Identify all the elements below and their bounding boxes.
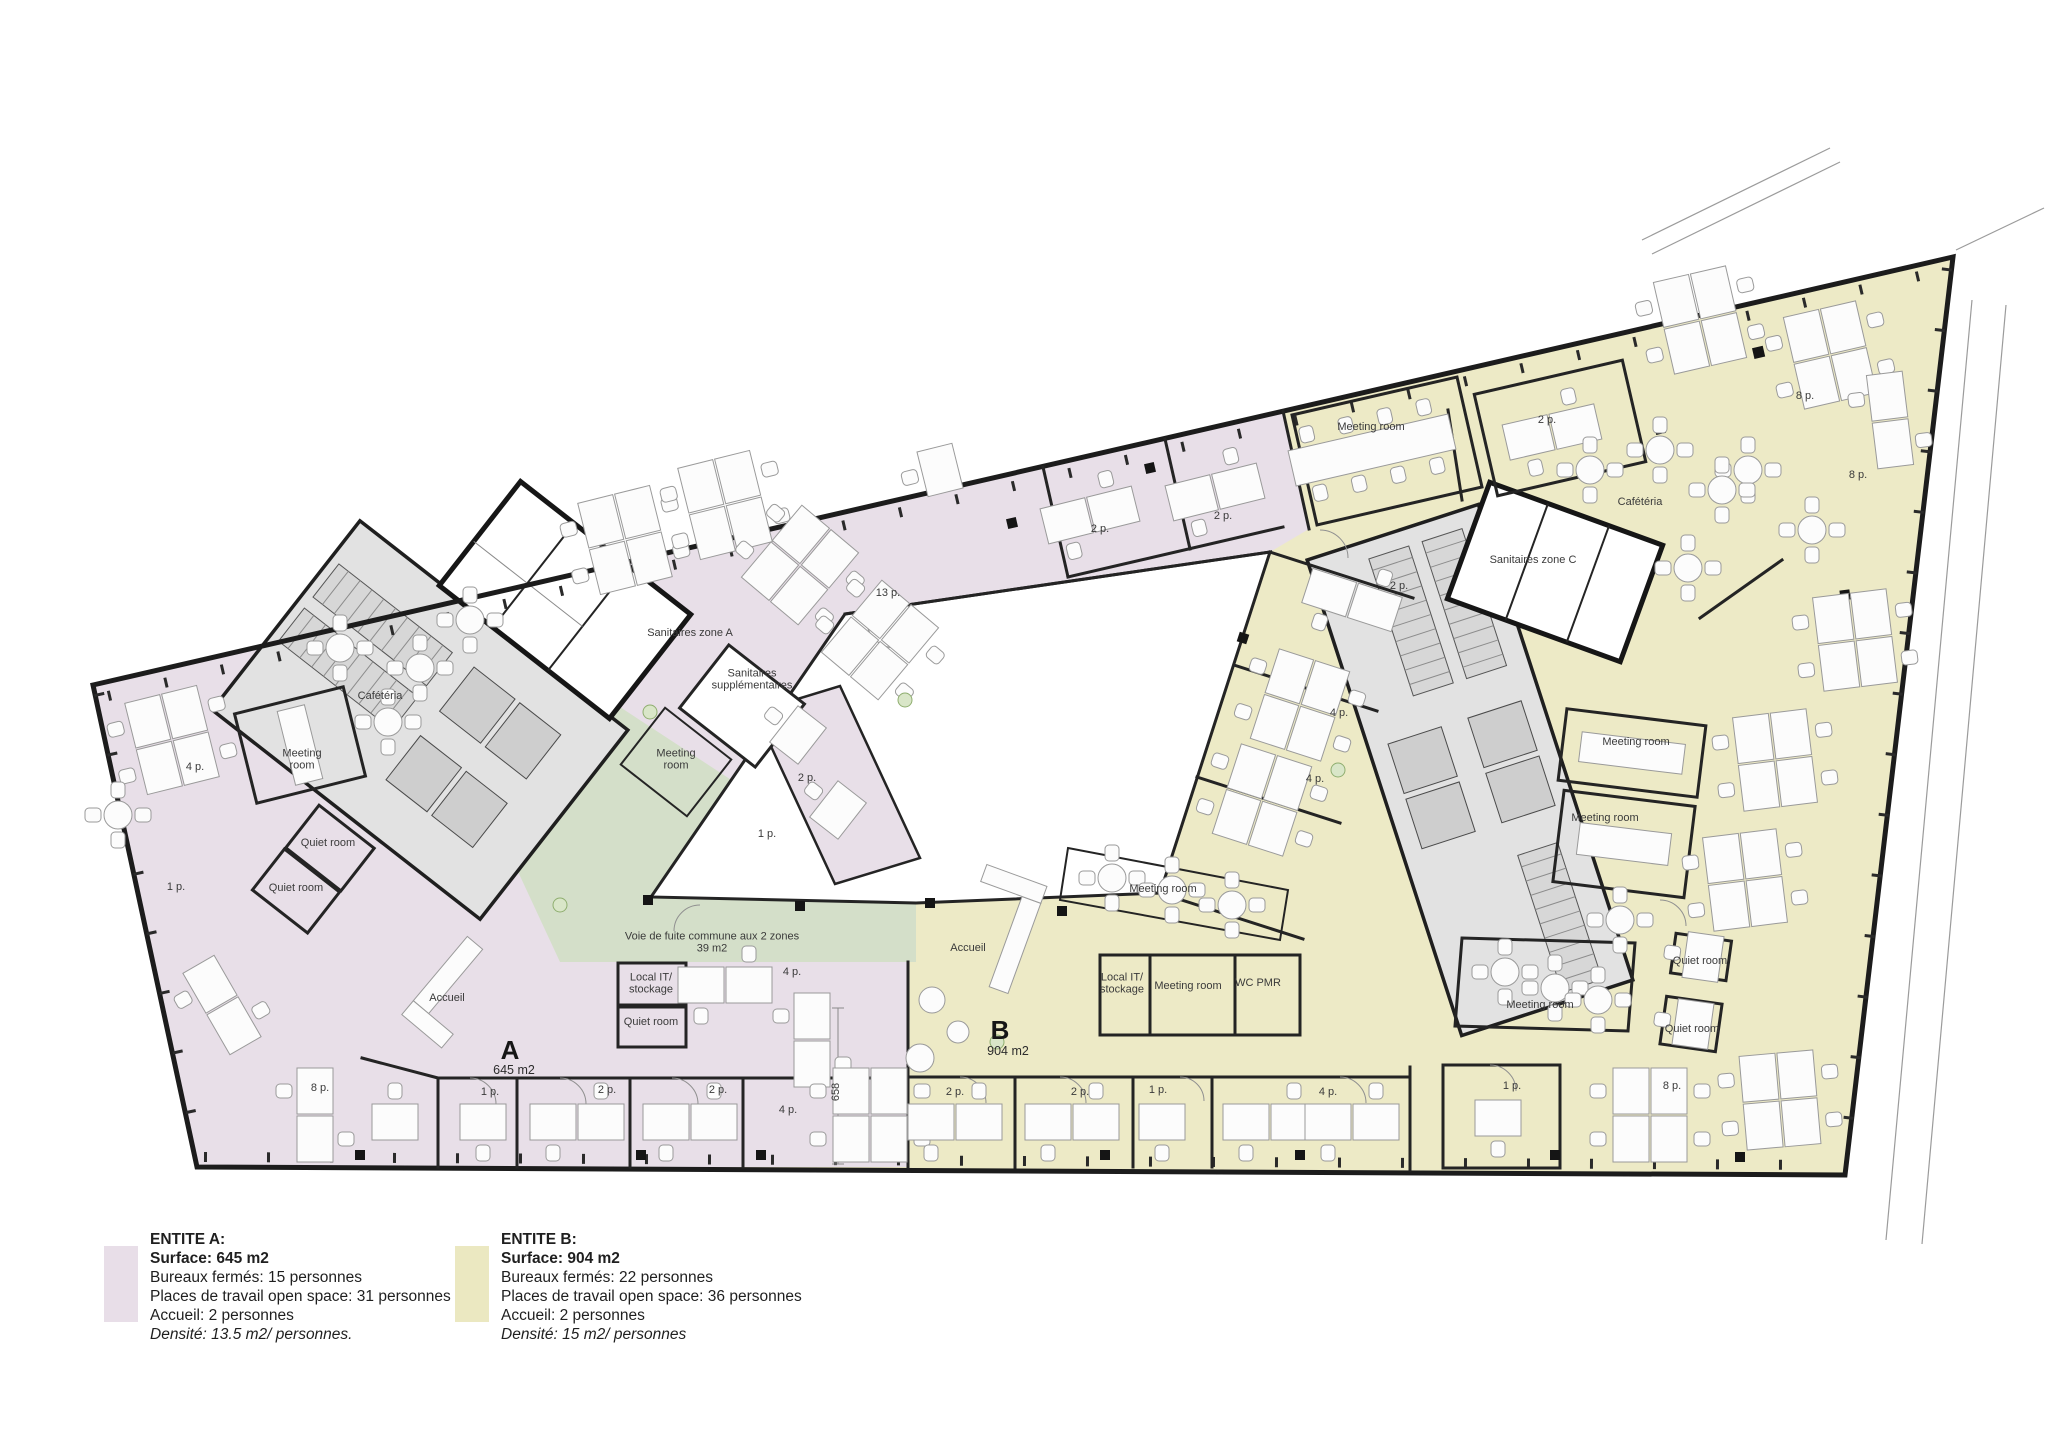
legend-b-line: Bureaux fermés: 22 personnes [501,1268,802,1287]
legend-b-surface: Surface: 904 m2 [501,1249,802,1268]
legend-entite-a: ENTITE A: Surface: 645 m2 Bureaux fermés… [104,1230,451,1344]
legend-entite-b: ENTITE B: Surface: 904 m2 Bureaux fermés… [455,1230,802,1344]
legend-a-line: Places de travail open space: 31 personn… [150,1287,451,1306]
legend-a-line: Bureaux fermés: 15 personnes [150,1268,451,1287]
floor-plan-page: CafétériaMeeting room4 p.Quiet roomQuiet… [0,0,2048,1447]
legend-a-line: Accueil: 2 personnes [150,1306,451,1325]
legend-b-line: Accueil: 2 personnes [501,1306,802,1325]
legend-a-density: Densité: 13.5 m2/ personnes. [150,1325,451,1344]
legend-a-surface: Surface: 645 m2 [150,1249,451,1268]
legend-b-title: ENTITE B: [501,1230,802,1249]
legend-b-density: Densité: 15 m2/ personnes [501,1325,802,1344]
legend-a-title: ENTITE A: [150,1230,451,1249]
legend-b-line: Places de travail open space: 36 personn… [501,1287,802,1306]
color-swatch-entite-b [455,1246,489,1322]
color-swatch-entite-a [104,1246,138,1322]
